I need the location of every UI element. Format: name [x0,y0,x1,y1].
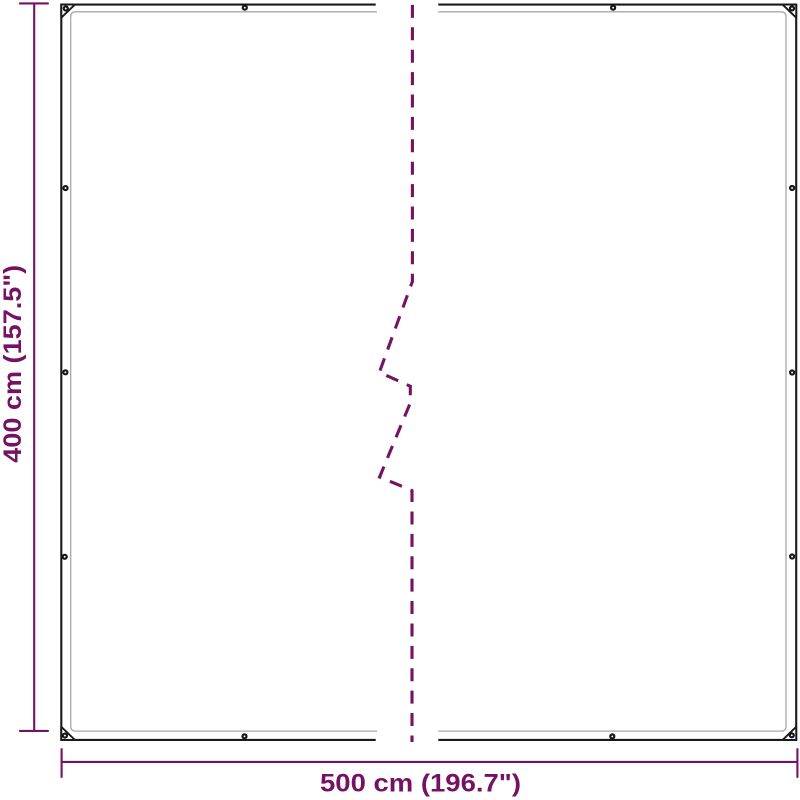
svg-text:500 cm (196.7"): 500 cm (196.7") [320,769,521,797]
svg-text:400 cm (157.5"): 400 cm (157.5") [0,265,27,463]
